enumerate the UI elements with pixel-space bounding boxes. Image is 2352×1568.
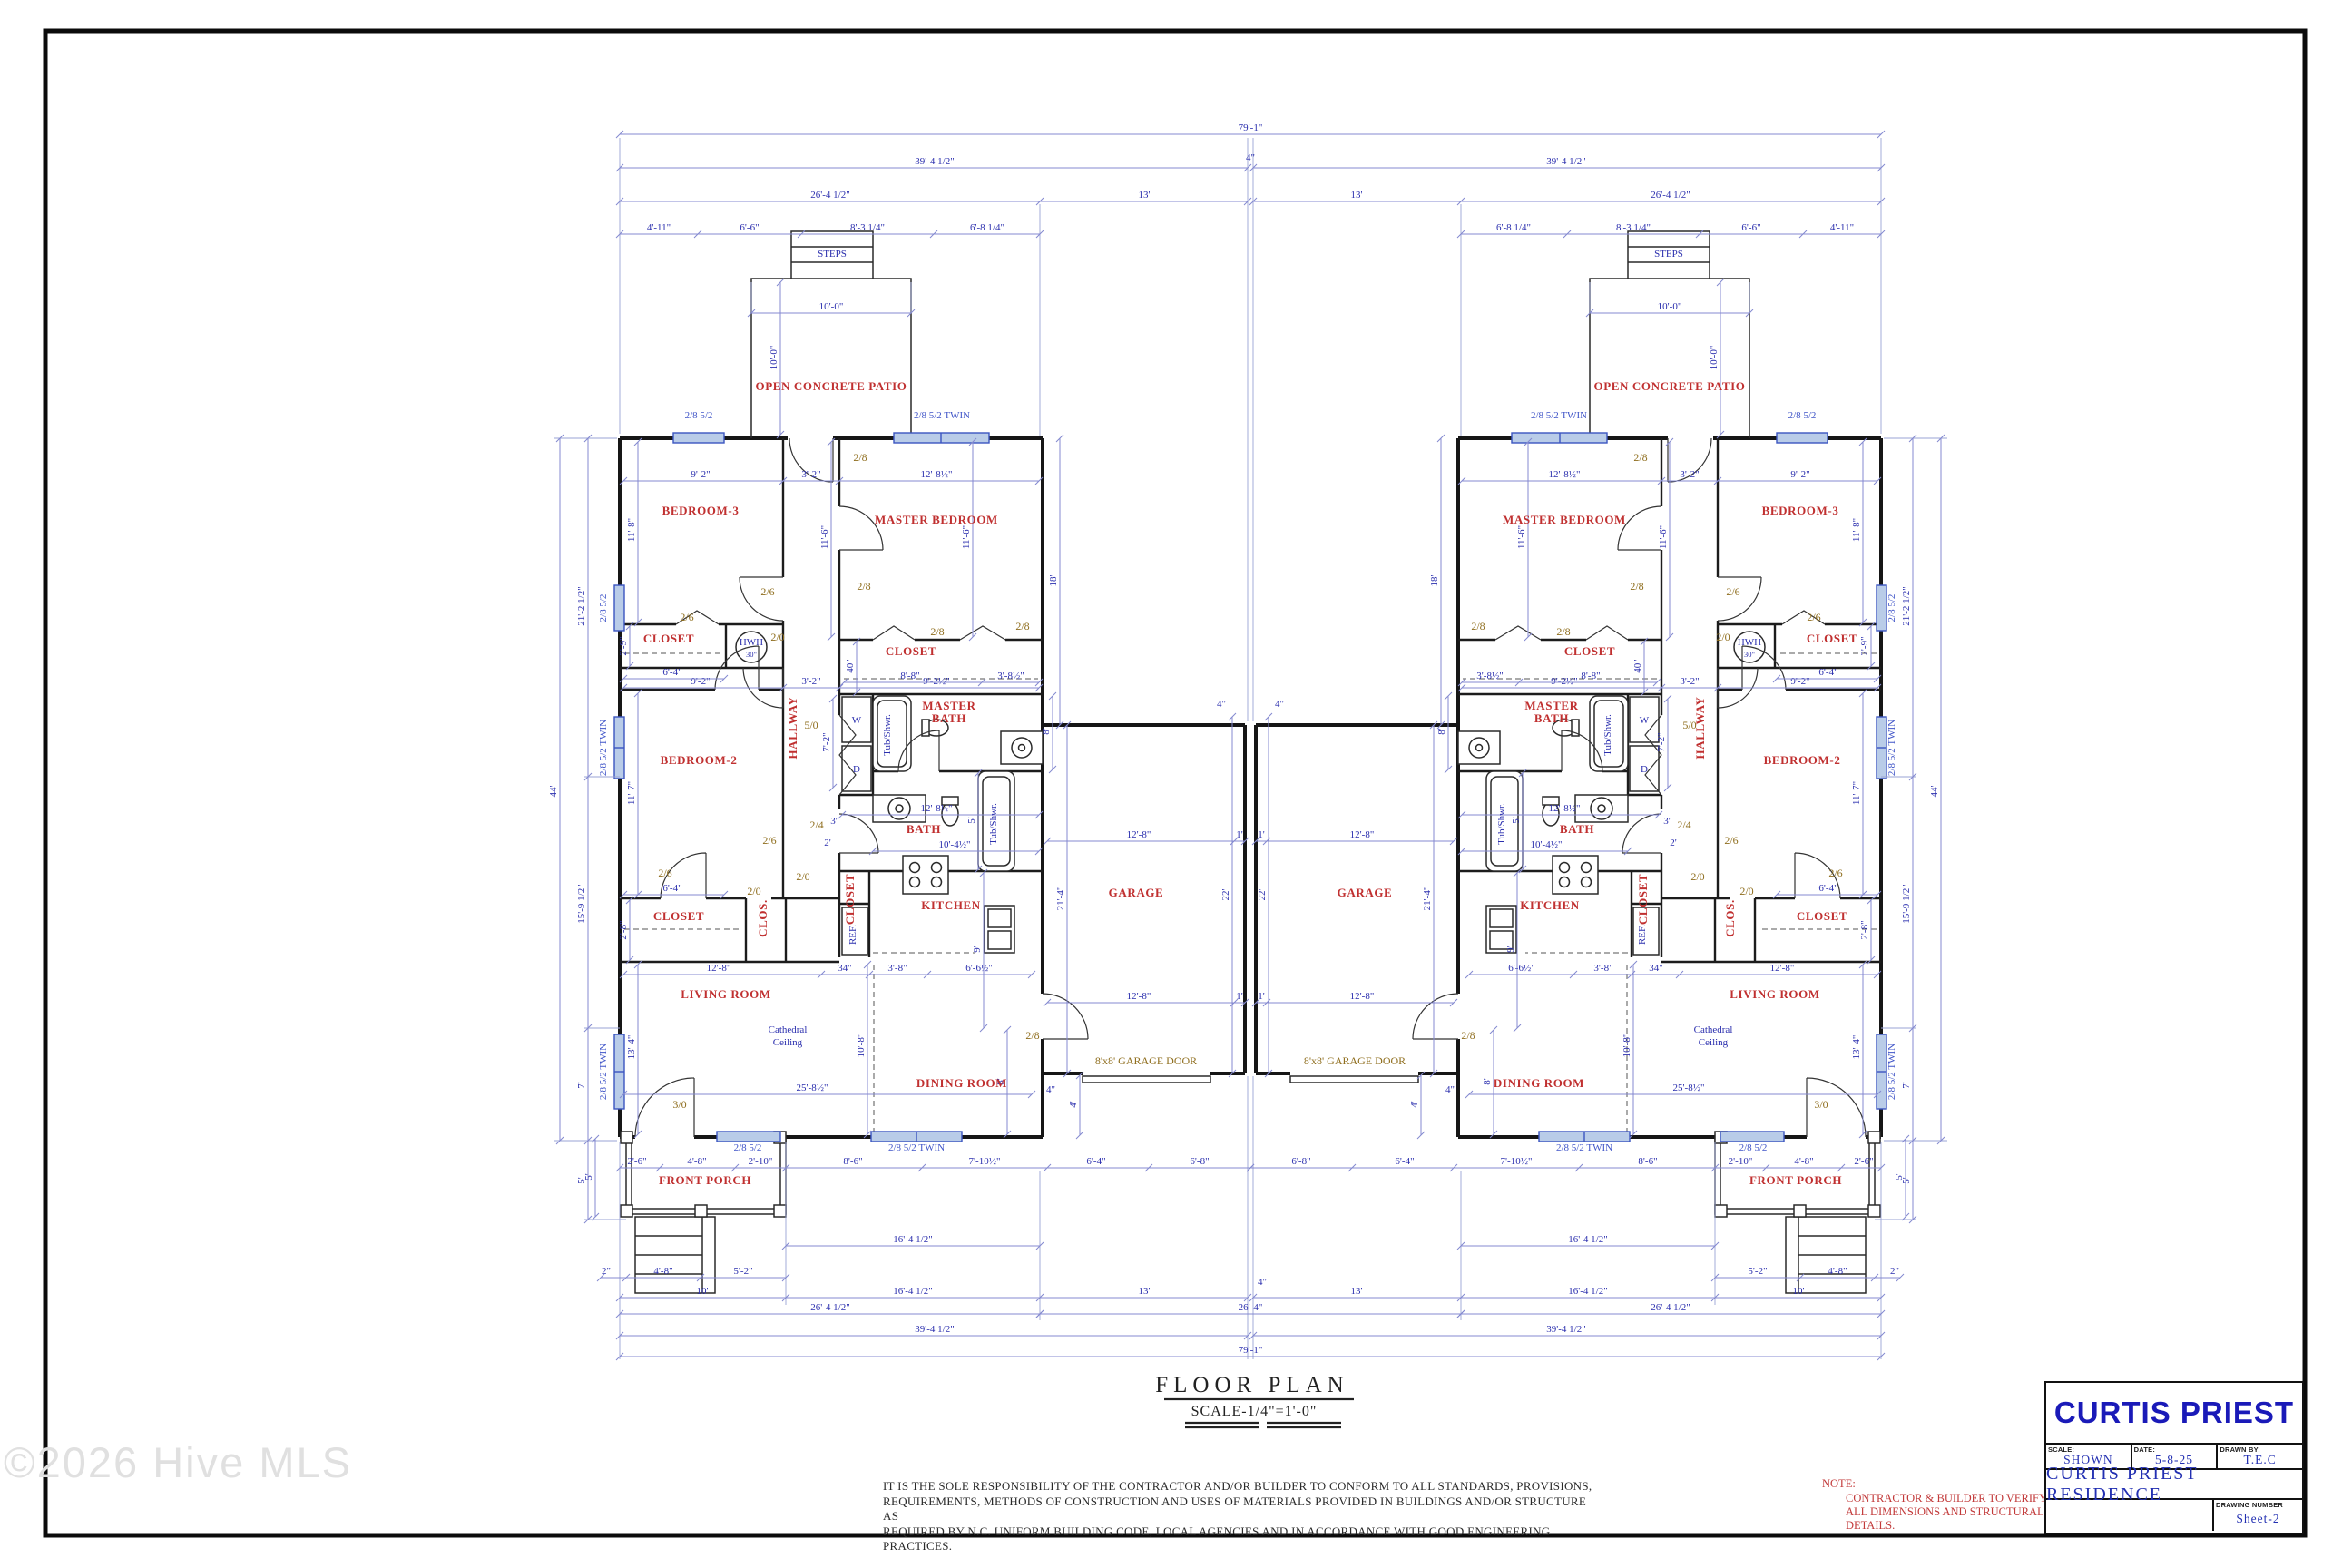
dim-label: 8' bbox=[1482, 1078, 1493, 1085]
dim-label: 26'-4 1/2" bbox=[1651, 1302, 1690, 1313]
room-label: BATH bbox=[1534, 711, 1569, 725]
note-label: NOTE: bbox=[1822, 1477, 2049, 1491]
dim-label: 25'-8½" bbox=[1673, 1083, 1705, 1093]
dimension-chain bbox=[597, 1274, 789, 1281]
room-label: GARAGE bbox=[1109, 886, 1164, 899]
dim-label: 10'-8" bbox=[856, 1034, 867, 1058]
fixture-label: Ceiling bbox=[773, 1037, 803, 1048]
dim-label: 3'-2" bbox=[1680, 469, 1699, 480]
window-size-label: 2/8 5/2 bbox=[598, 594, 609, 622]
fixture-label: STEPS bbox=[1654, 249, 1683, 260]
fixture-label: HWH bbox=[740, 637, 763, 648]
fixture-label: HWH bbox=[1738, 637, 1761, 648]
door-size-label: 2/6 bbox=[658, 867, 671, 879]
door-size-label: 2/8 bbox=[1556, 625, 1570, 638]
door-size-label: 2/0 bbox=[1716, 631, 1730, 643]
window-size-label: 2/8 5/2 TWIN bbox=[1531, 410, 1587, 421]
dim-label: 12'-8" bbox=[707, 963, 731, 974]
dim-label: 39'-4 1/2" bbox=[1546, 1324, 1585, 1335]
dim-label: 2" bbox=[1890, 1266, 1899, 1277]
dim-label: 8'-3 1/4" bbox=[1616, 222, 1651, 233]
dim-label: 39'-4 1/2" bbox=[915, 156, 954, 167]
fixture-label: Tub/Shwr. bbox=[988, 803, 999, 845]
room-label: KITCHEN bbox=[1520, 898, 1580, 912]
note-line: ALL DIMENSIONS AND STRUCTURAL bbox=[1846, 1505, 2049, 1519]
dimension-chain bbox=[616, 1164, 1254, 1171]
dim-label: 2' bbox=[1670, 838, 1677, 848]
drawing-number-value: Sheet-2 bbox=[2236, 1512, 2279, 1525]
dim-label: 6'-4" bbox=[662, 667, 681, 678]
dim-label: 11'-6" bbox=[1658, 525, 1669, 549]
dim-label: 5' bbox=[583, 1173, 594, 1181]
fixture-label: D bbox=[853, 764, 860, 775]
room-label: FRONT PORCH bbox=[659, 1173, 751, 1187]
dim-label: 8'-6" bbox=[843, 1156, 862, 1167]
dim-label: 11'-8" bbox=[626, 518, 637, 542]
door-size-label: 2/8 bbox=[853, 451, 867, 464]
dim-label: 7'-10½" bbox=[969, 1156, 1001, 1167]
room-label: CLOSET bbox=[843, 874, 857, 925]
drawing-sheet: 79'-1"39'-4 1/2"39'-4 1/2"26'-4 1/2"13'2… bbox=[0, 0, 2352, 1568]
door-size-label: 2/6 bbox=[1828, 867, 1842, 879]
room-label: OPEN CONCRETE PATIO bbox=[756, 379, 907, 393]
door-size-label: 2/6 bbox=[762, 834, 776, 847]
dim-label: 2'-8" bbox=[1859, 920, 1870, 939]
door-size-label: 2/8 bbox=[930, 625, 944, 638]
drawing-number-cell: DRAWING NUMBER Sheet-2 bbox=[2214, 1500, 2302, 1531]
dim-label: 4" bbox=[1258, 1277, 1267, 1288]
dim-label: 44' bbox=[1929, 785, 1940, 797]
fixture-label: Cathedral bbox=[769, 1024, 808, 1035]
dim-label: 8'-3 1/4" bbox=[850, 222, 885, 233]
dim-label: 2'-10" bbox=[1729, 1156, 1753, 1167]
disclaimer-line: IT IS THE SOLE RESPONSIBILITY OF THE CON… bbox=[883, 1479, 1595, 1494]
dim-label: 18' bbox=[1048, 574, 1059, 586]
dim-label: 34" bbox=[1649, 963, 1663, 974]
window-size-label: 2/8 5/2 bbox=[685, 410, 713, 421]
unit-walls-mirrored bbox=[1253, 138, 1947, 1359]
dim-label: 21'-4" bbox=[1422, 887, 1433, 911]
contractor-note: NOTE: CONTRACTOR & BUILDER TO VERIFY ALL… bbox=[1822, 1477, 2049, 1533]
dim-label: 6'-4" bbox=[1395, 1156, 1414, 1167]
dim-label: 9'-2" bbox=[1790, 469, 1809, 480]
dim-label: 26'-4 1/2" bbox=[810, 190, 849, 201]
dim-label: 11'-8" bbox=[1851, 518, 1862, 542]
dim-label: 40" bbox=[1632, 659, 1643, 673]
dim-label: 6'-8 1/4" bbox=[970, 222, 1004, 233]
room-label: CLOSET bbox=[643, 632, 694, 645]
fixture-label: REF. bbox=[1637, 925, 1648, 945]
dim-label: 26'-4" bbox=[1239, 1302, 1263, 1313]
room-label: GARAGE bbox=[1338, 886, 1393, 899]
dim-label: 2'-8" bbox=[618, 920, 629, 939]
drawn-by-value: T.E.C bbox=[2244, 1453, 2277, 1466]
dim-label: 3'-2" bbox=[1680, 676, 1699, 687]
date-value: 5-8-25 bbox=[2155, 1453, 2193, 1466]
dimension-chain bbox=[1909, 435, 1916, 1223]
dim-label: 7'-2" bbox=[1656, 732, 1667, 751]
dim-label: 13'-4" bbox=[1851, 1035, 1862, 1060]
dim-label: 9'-2½" bbox=[1551, 676, 1577, 687]
dimension-chain bbox=[1247, 1164, 1885, 1171]
dim-label: 16'-4 1/2" bbox=[893, 1234, 932, 1245]
window-size-label: 2/8 5/2 TWIN bbox=[914, 410, 970, 421]
dim-label: 5' bbox=[1894, 1173, 1905, 1181]
dim-label: 11'-6" bbox=[1516, 525, 1527, 549]
dim-label: 79'-1" bbox=[1239, 122, 1263, 133]
dim-label: 4'-8" bbox=[653, 1266, 672, 1277]
dim-label: 11'-7" bbox=[626, 781, 637, 805]
scale-value: SHOWN bbox=[2063, 1453, 2113, 1466]
dim-label: 3'-8½" bbox=[1476, 671, 1503, 681]
note-line: DETAILS. bbox=[1846, 1519, 2049, 1533]
dim-label: 12'-8" bbox=[1127, 991, 1151, 1002]
dim-label: 10'-4½" bbox=[939, 839, 971, 850]
dim-label: 4" bbox=[1046, 1084, 1055, 1095]
unit-walls bbox=[554, 138, 1248, 1359]
dim-label: 4'-8" bbox=[1794, 1156, 1813, 1167]
room-label: BATH bbox=[932, 711, 966, 725]
dim-label: 7' bbox=[576, 1082, 587, 1089]
door-size-label: 2/0 bbox=[770, 631, 784, 643]
dim-label: 2'-9" bbox=[618, 636, 629, 655]
dim-label: 10' bbox=[697, 1286, 709, 1297]
dimension-chain bbox=[584, 435, 592, 1223]
room-label: BEDROOM-3 bbox=[1762, 504, 1839, 517]
window-size-label: 2/8 5/2 TWIN bbox=[888, 1142, 945, 1153]
dim-label: 18' bbox=[1429, 574, 1440, 586]
date-label: DATE: bbox=[2134, 1445, 2155, 1454]
door-size-label: 2/8 bbox=[1025, 1029, 1039, 1042]
door-size-label: 2/6 bbox=[760, 585, 774, 598]
dim-label: 16'-4 1/2" bbox=[1568, 1234, 1607, 1245]
room-label: CLOSET bbox=[653, 909, 704, 923]
window-size-label: 2/8 5/2 bbox=[1886, 594, 1897, 622]
dim-label: 8'-8" bbox=[1581, 671, 1600, 681]
dimension-chain bbox=[1249, 198, 1885, 205]
dim-label: 4" bbox=[1246, 152, 1255, 163]
dim-label: 10'-4½" bbox=[1531, 839, 1563, 850]
dim-label: 12'-8" bbox=[1127, 829, 1151, 840]
fixture-label: Tub/Shwr. bbox=[1602, 714, 1613, 756]
scale-cell: SCALE: SHOWN bbox=[2046, 1445, 2132, 1468]
dimension-chain bbox=[616, 1294, 1251, 1301]
room-label: MASTER BEDROOM bbox=[875, 513, 998, 526]
door-size-label: 2/4 bbox=[809, 818, 823, 831]
dim-label: 6'-6½" bbox=[965, 963, 992, 974]
title-block-empty-cell bbox=[2046, 1500, 2214, 1531]
dim-label: 10'-0" bbox=[1658, 301, 1682, 312]
room-label: CLOSET bbox=[886, 644, 936, 658]
dim-label: 4'-11" bbox=[647, 222, 671, 233]
dim-label: 10' bbox=[1793, 1286, 1805, 1297]
dim-label: 44' bbox=[548, 785, 559, 797]
dimension-chain bbox=[616, 198, 1251, 205]
door-size-label: 2/0 bbox=[1690, 870, 1704, 883]
dim-label: 6'-6½" bbox=[1508, 963, 1534, 974]
door-size-label: 2/8 bbox=[1471, 620, 1485, 632]
window-size-label: 2/8 5/2 TWIN bbox=[1556, 1142, 1612, 1153]
dim-label: 22' bbox=[1220, 888, 1231, 900]
dim-label: 3' bbox=[830, 816, 838, 827]
dim-label: 11'-6" bbox=[961, 525, 972, 549]
plan-title: FLOOR PLAN bbox=[1155, 1373, 1349, 1397]
door-size-label: 2/0 bbox=[1739, 885, 1753, 897]
dim-label: 79'-1" bbox=[1239, 1345, 1263, 1356]
disclaimer-line: REQUIRED BY N.C. UNIFORM BUILDING CODE, … bbox=[883, 1524, 1595, 1554]
fixture-label: Tub/Shwr. bbox=[1496, 803, 1507, 845]
dim-label: 3'-2" bbox=[801, 469, 820, 480]
fixture-label: Cathedral bbox=[1694, 1024, 1733, 1035]
dim-label: 6'-8" bbox=[1190, 1156, 1209, 1167]
dim-label: 4' bbox=[1068, 1101, 1079, 1108]
dim-label: 12'-8" bbox=[1350, 829, 1375, 840]
note-line: CONTRACTOR & BUILDER TO VERIFY bbox=[1846, 1492, 2049, 1505]
dim-label: 12'-8½" bbox=[1549, 469, 1581, 480]
dim-label: 4'-8" bbox=[1828, 1266, 1847, 1277]
door-size-label: 2/8 bbox=[1633, 451, 1647, 464]
dim-label: 4" bbox=[1445, 1084, 1455, 1095]
dim-label: 2'-10" bbox=[749, 1156, 773, 1167]
window-size-label: 2/8 5/2 TWIN bbox=[598, 720, 609, 776]
room-label: BATH bbox=[906, 822, 941, 836]
mls-watermark: ©2026 Hive MLS bbox=[4, 1437, 352, 1487]
dim-label: 12'-8½" bbox=[921, 803, 953, 814]
door-size-label: 3/0 bbox=[672, 1098, 686, 1111]
dim-label: 7'-2" bbox=[821, 732, 832, 751]
window-size-label: 2/8 5/2 bbox=[1739, 1142, 1768, 1153]
disclaimer-line: REQUIREMENTS, METHODS OF CONSTRUCTION AN… bbox=[883, 1494, 1595, 1524]
dim-label: 39'-4 1/2" bbox=[1546, 156, 1585, 167]
dim-label: 9'-2" bbox=[691, 469, 710, 480]
dim-label: 5' bbox=[966, 817, 977, 824]
room-label: FRONT PORCH bbox=[1749, 1173, 1842, 1187]
dim-label: 5'-2" bbox=[733, 1266, 752, 1277]
dim-label: 7' bbox=[1901, 1082, 1912, 1089]
dim-label: 8'-8" bbox=[900, 671, 919, 681]
room-label: BEDROOM-2 bbox=[1764, 753, 1841, 767]
dim-label: 3'-8" bbox=[887, 963, 906, 974]
dim-label: 15'-9 1/2" bbox=[1901, 884, 1912, 923]
room-label: DINING ROOM bbox=[1494, 1076, 1584, 1090]
door-size-label: 2/6 bbox=[1807, 611, 1820, 623]
company-name: CURTIS PRIEST bbox=[2046, 1383, 2302, 1445]
dim-label: 16'-4 1/2" bbox=[893, 1286, 932, 1297]
floor-plan-drawing: 79'-1"39'-4 1/2"39'-4 1/2"26'-4 1/2"13'2… bbox=[0, 0, 2352, 1568]
window-size-label: 2/8 5/2 bbox=[1788, 410, 1817, 421]
door-size-label: 2/8 bbox=[1630, 580, 1643, 593]
dim-label: 11'-7" bbox=[1851, 781, 1862, 805]
dim-label: 16'-4 1/2" bbox=[1568, 1286, 1607, 1297]
date-cell: DATE: 5-8-25 bbox=[2132, 1445, 2219, 1468]
door-size-label: 2/0 bbox=[747, 885, 760, 897]
room-label: CLOSET bbox=[1797, 909, 1847, 923]
room-label: CLOS. bbox=[756, 899, 769, 937]
fixture-label: D bbox=[1641, 764, 1648, 775]
dim-label: 6'-8" bbox=[1291, 1156, 1310, 1167]
room-label: CLOSET bbox=[1636, 874, 1650, 925]
door-size-label: 8'x8' GARAGE DOOR bbox=[1095, 1054, 1197, 1067]
door-size-label: 3/0 bbox=[1814, 1098, 1828, 1111]
dim-label: 6'-4" bbox=[1086, 1156, 1105, 1167]
dimension-chain bbox=[1249, 1294, 1885, 1301]
title-block: CURTIS PRIEST SCALE: SHOWN DATE: 5-8-25 … bbox=[2044, 1381, 2304, 1534]
room-label: MASTER bbox=[1524, 699, 1578, 712]
door-size-label: 2/6 bbox=[1726, 585, 1739, 598]
sheet-border bbox=[45, 31, 2305, 1535]
room-label: BEDROOM-2 bbox=[661, 753, 738, 767]
dim-label: 25'-8½" bbox=[797, 1083, 828, 1093]
dim-label: 4" bbox=[1217, 699, 1226, 710]
door-size-label: 2/8 bbox=[1461, 1029, 1475, 1042]
dim-label: 10'-8" bbox=[1622, 1034, 1632, 1058]
dim-label: 4' bbox=[1409, 1101, 1420, 1108]
room-label: MASTER bbox=[922, 699, 975, 712]
dim-label: 13' bbox=[1139, 190, 1151, 201]
dim-label: 3'-2" bbox=[801, 676, 820, 687]
dim-label: 21'-4" bbox=[1055, 887, 1066, 911]
dim-label: 10'-0" bbox=[819, 301, 844, 312]
dim-label: 10'-0" bbox=[1709, 346, 1720, 370]
dim-label: 34" bbox=[838, 963, 852, 974]
dim-label: 6'-4" bbox=[662, 883, 681, 894]
window-size-label: 2/8 5/2 TWIN bbox=[1886, 1044, 1897, 1100]
dim-label: 2'-6" bbox=[1854, 1156, 1873, 1167]
fixture-label: STEPS bbox=[818, 249, 847, 260]
plan-scale: SCALE-1/4"=1'-0" bbox=[1191, 1404, 1318, 1419]
dim-label: 3'-8" bbox=[1593, 963, 1612, 974]
room-label: CLOSET bbox=[1807, 632, 1857, 645]
door-size-label: 2/4 bbox=[1677, 818, 1690, 831]
room-label: LIVING ROOM bbox=[681, 987, 770, 1001]
door-size-label: 2/6 bbox=[1724, 834, 1738, 847]
dim-label: 15'-9 1/2" bbox=[576, 884, 587, 923]
door-size-label: 2/6 bbox=[680, 611, 693, 623]
dim-label: 13' bbox=[1351, 190, 1363, 201]
fixture-label: REF. bbox=[848, 925, 858, 945]
room-label: OPEN CONCRETE PATIO bbox=[1594, 379, 1746, 393]
dim-label: 26'-4 1/2" bbox=[810, 1302, 849, 1313]
dim-label: 9'-2½" bbox=[923, 676, 949, 687]
door-size-label: 5/0 bbox=[1682, 719, 1696, 731]
drawn-by-cell: DRAWN BY: T.E.C bbox=[2218, 1445, 2302, 1468]
fixture-label: Ceiling bbox=[1699, 1037, 1729, 1048]
dim-label: 39'-4 1/2" bbox=[915, 1324, 954, 1335]
dim-label: 26'-4 1/2" bbox=[1651, 190, 1690, 201]
dim-label: 5'-2" bbox=[1748, 1266, 1767, 1277]
dim-label: 6'-4" bbox=[1818, 883, 1837, 894]
dim-label: 10'-0" bbox=[769, 346, 779, 370]
dim-label: 3'-8½" bbox=[997, 671, 1024, 681]
dim-label: 2'-6" bbox=[627, 1156, 646, 1167]
dim-label: 7'-10½" bbox=[1501, 1156, 1533, 1167]
project-name: CURTIS PRIEST RESIDENCE bbox=[2046, 1470, 2302, 1500]
dim-label: 12'-8½" bbox=[921, 469, 953, 480]
room-label: MASTER BEDROOM bbox=[1503, 513, 1626, 526]
dim-label: 40" bbox=[845, 659, 856, 673]
room-label: KITCHEN bbox=[921, 898, 981, 912]
dim-label: 8' bbox=[1436, 728, 1447, 735]
dim-label: 13' bbox=[1139, 1286, 1151, 1297]
dim-label: 12'-8" bbox=[1350, 991, 1375, 1002]
door-size-label: 2/0 bbox=[796, 870, 809, 883]
dim-label: 4'-11" bbox=[1830, 222, 1854, 233]
dim-label: 2'-9" bbox=[1859, 636, 1870, 655]
dim-label: 6'-6" bbox=[1741, 222, 1760, 233]
dim-label: 5' bbox=[1511, 817, 1522, 824]
dim-label: 21'-2 1/2" bbox=[1901, 586, 1912, 625]
scale-label: SCALE: bbox=[2048, 1445, 2074, 1454]
fixture-label: W bbox=[852, 715, 862, 726]
fixture-label: Tub/Shwr. bbox=[882, 714, 893, 756]
dim-label: 13' bbox=[1351, 1286, 1363, 1297]
dim-label: 8' bbox=[1041, 728, 1052, 735]
dim-label: 4'-8" bbox=[687, 1156, 706, 1167]
dim-label: 6'-8 1/4" bbox=[1496, 222, 1531, 233]
dim-label: 22' bbox=[1257, 888, 1268, 900]
dimension-chain bbox=[1711, 1274, 1904, 1281]
dim-label: 9'-2" bbox=[1790, 676, 1809, 687]
dim-label: 13'-4" bbox=[626, 1035, 637, 1060]
dim-label: 4" bbox=[1275, 699, 1284, 710]
dim-label: 12'-8" bbox=[1770, 963, 1795, 974]
window-size-label: 2/8 5/2 bbox=[734, 1142, 762, 1153]
fixture-label: W bbox=[1640, 715, 1650, 726]
dim-label: 9' bbox=[972, 946, 983, 953]
room-label: HALLWAY bbox=[786, 696, 799, 759]
dim-label: 9'-2" bbox=[691, 676, 710, 687]
room-label: LIVING ROOM bbox=[1730, 987, 1819, 1001]
code-disclaimer: IT IS THE SOLE RESPONSIBILITY OF THE CON… bbox=[883, 1479, 1595, 1554]
dim-label: 12'-8½" bbox=[1549, 803, 1581, 814]
door-size-label: 2/8 bbox=[1015, 620, 1029, 632]
fixture-label: 30" bbox=[746, 650, 757, 659]
dim-label: 21'-2 1/2" bbox=[576, 586, 587, 625]
window-size-label: 2/8 5/2 TWIN bbox=[1886, 720, 1897, 776]
door-size-label: 8'x8' GARAGE DOOR bbox=[1304, 1054, 1406, 1067]
dim-label: 11'-6" bbox=[819, 525, 830, 549]
window-size-label: 2/8 5/2 TWIN bbox=[598, 1044, 609, 1100]
fixture-label: 30" bbox=[1744, 650, 1755, 659]
drawing-number-label: DRAWING NUMBER bbox=[2216, 1501, 2283, 1509]
room-label: DINING ROOM bbox=[916, 1076, 1007, 1090]
room-label: CLOS. bbox=[1723, 899, 1737, 937]
dim-label: 6'-6" bbox=[740, 222, 759, 233]
dim-label: 6'-4" bbox=[1818, 667, 1837, 678]
dim-label: 9' bbox=[1505, 946, 1516, 953]
drawn-by-label: DRAWN BY: bbox=[2220, 1445, 2260, 1454]
room-label: BATH bbox=[1560, 822, 1594, 836]
door-size-label: 2/8 bbox=[857, 580, 870, 593]
dim-label: 2' bbox=[824, 838, 831, 848]
dim-label: 3' bbox=[1663, 816, 1671, 827]
door-size-label: 5/0 bbox=[804, 719, 818, 731]
room-label: BEDROOM-3 bbox=[662, 504, 740, 517]
dim-label: 8'-6" bbox=[1638, 1156, 1657, 1167]
room-label: CLOSET bbox=[1564, 644, 1615, 658]
